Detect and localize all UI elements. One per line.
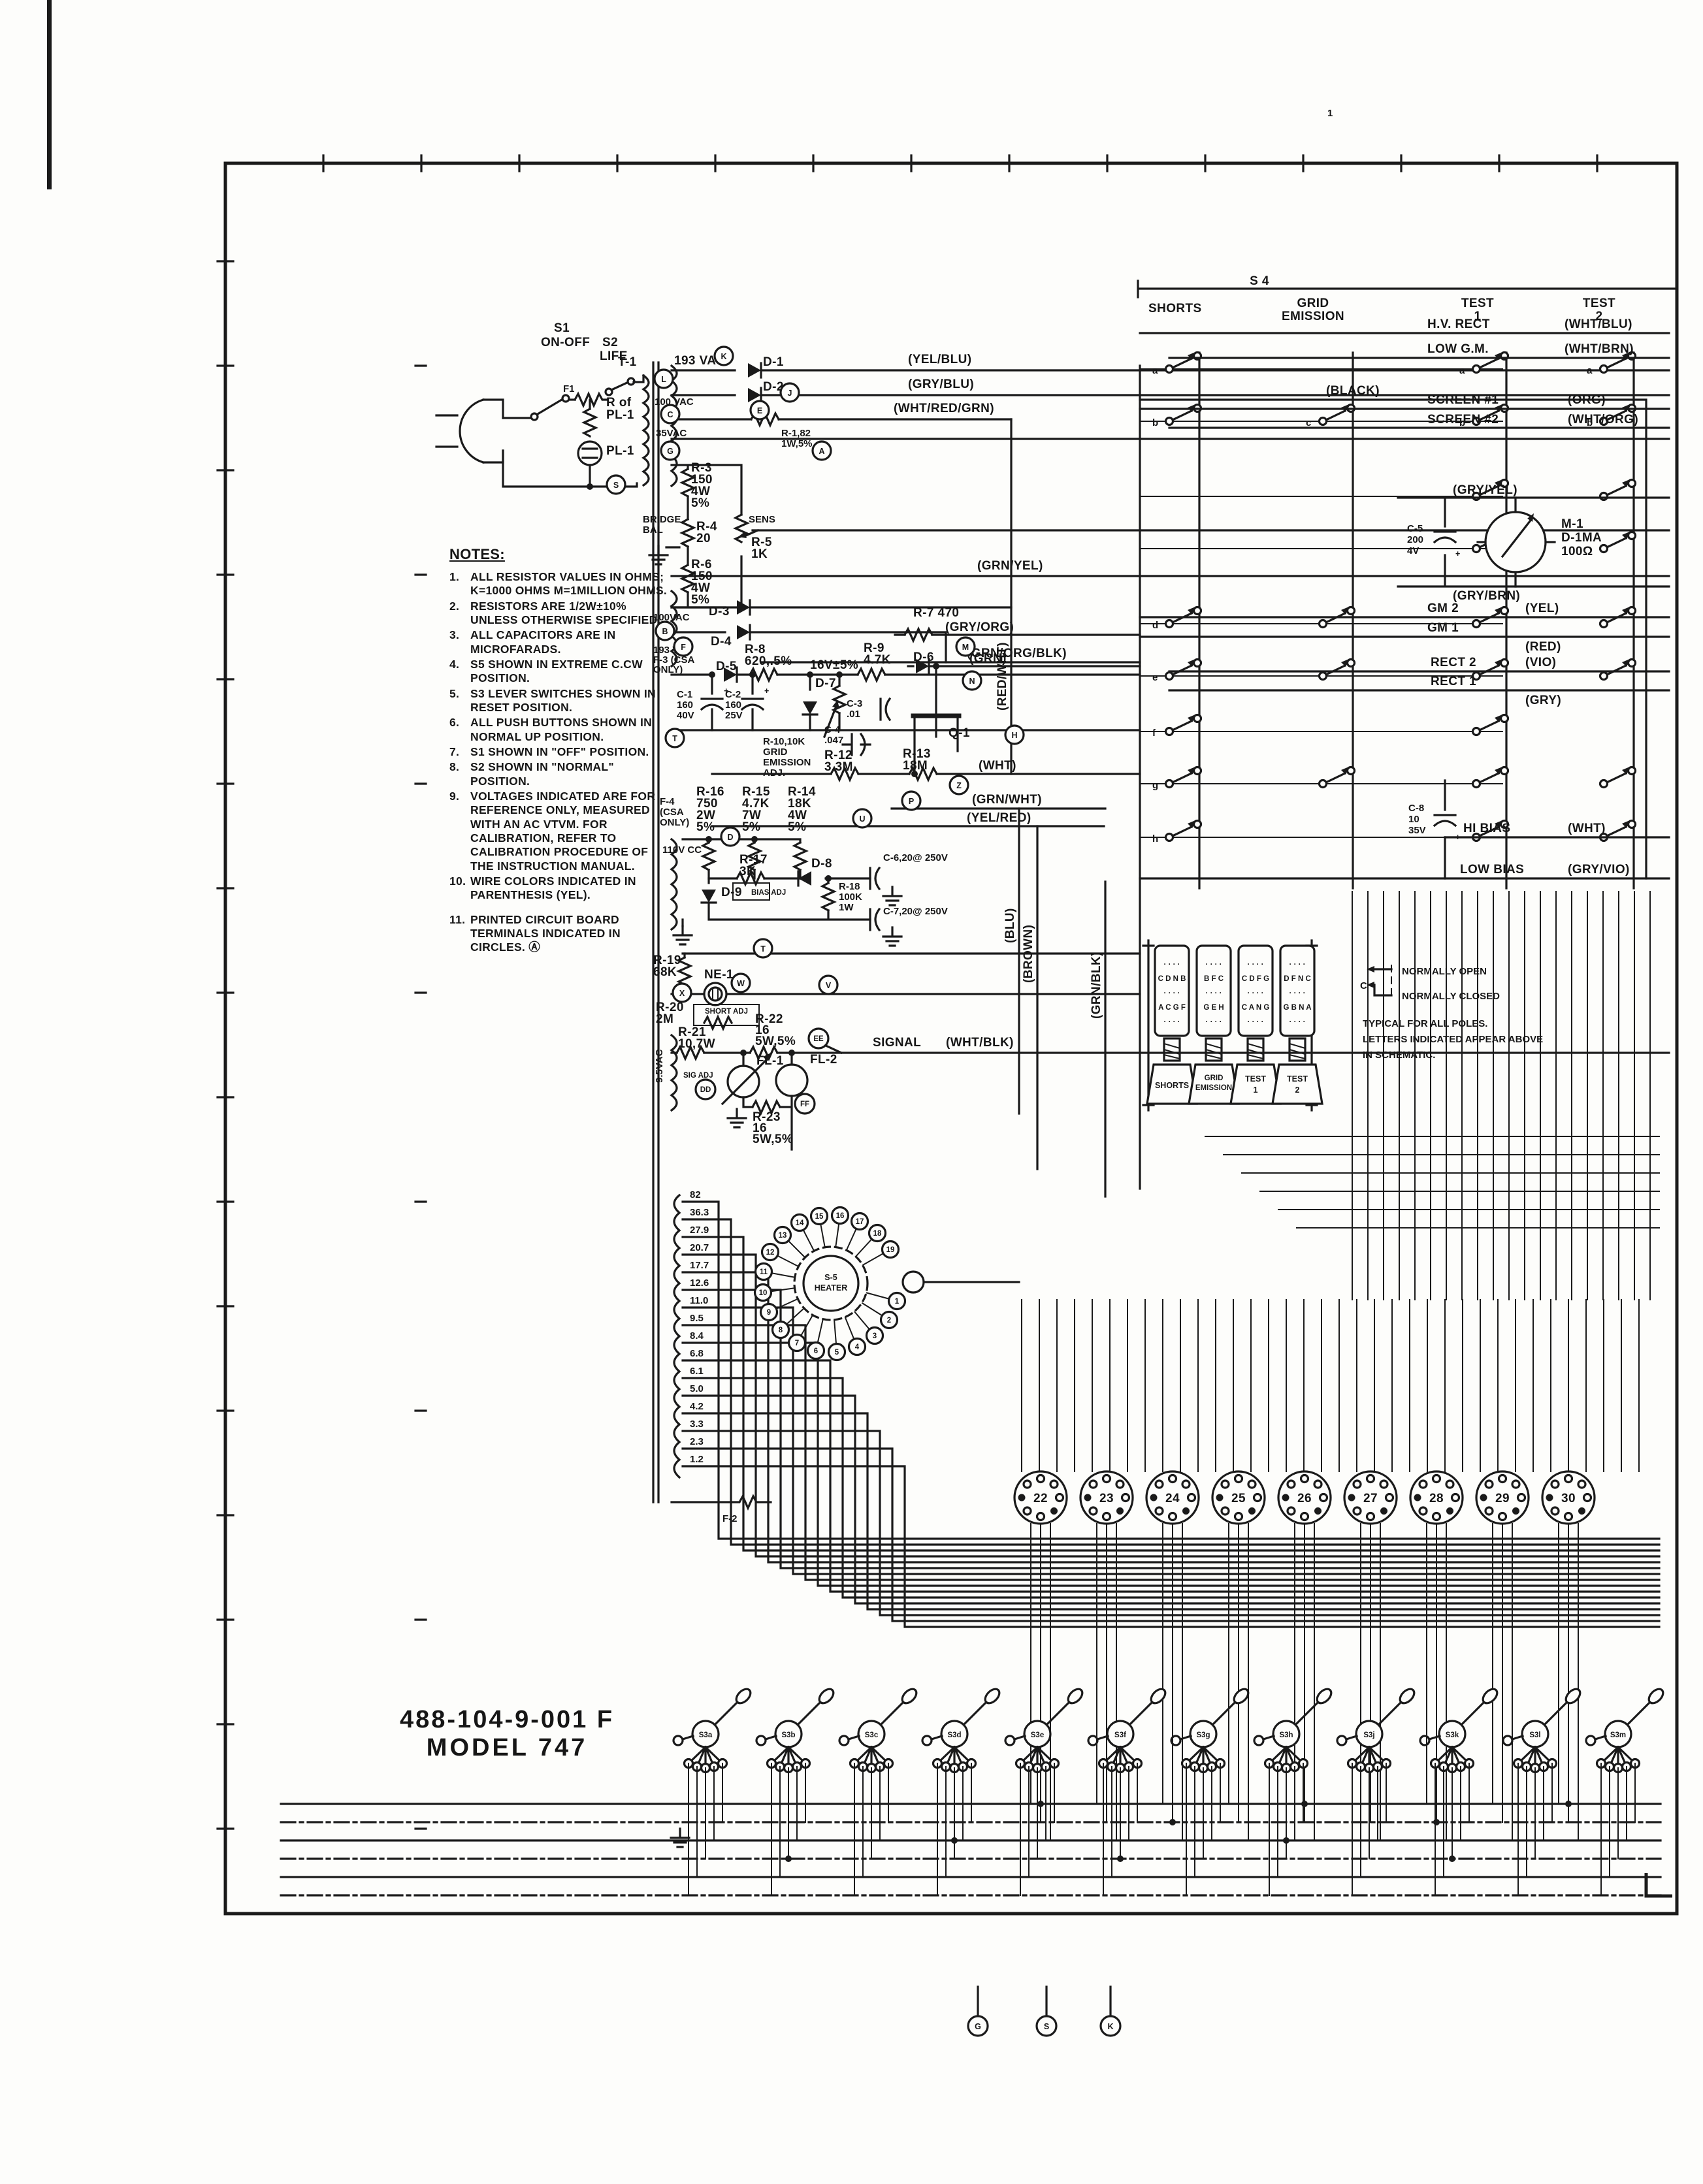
note-item: 5.S3 LEVER SWITCHES SHOWN IN RESET POSIT… (449, 687, 669, 715)
socket-27: 27 (1363, 1492, 1378, 1505)
d4-label: D-4 (711, 635, 732, 649)
part-number: 488-104-9-001 F (400, 1706, 614, 1734)
c2-plus: + (764, 686, 769, 696)
d8-label: D-8 (811, 857, 832, 871)
s2-ref: S2 (602, 336, 618, 349)
socket-29: 29 (1495, 1492, 1510, 1505)
btn1-letters2: A C G F (1158, 1004, 1186, 1012)
rectifier-section: 100VAC D-3 D-4 193 VACF-3 (CSAONLY) (GRN… (653, 600, 1140, 779)
btn1-dots2: · · · · (1164, 989, 1180, 997)
svg-text:6: 6 (814, 1347, 818, 1355)
bias-adj-label: BIAS ADJ (751, 889, 786, 897)
svg-text:D: D (727, 833, 733, 842)
svg-text:16: 16 (836, 1212, 845, 1220)
note-item: 6.ALL PUSH BUTTONS SHOWN IN NORMAL UP PO… (449, 716, 669, 744)
wire-gry-blu: (GRY/BLU) (908, 377, 974, 391)
svg-text:DD: DD (700, 1086, 711, 1094)
btn2-letters2: G E H (1203, 1004, 1224, 1012)
svg-text:S: S (613, 481, 619, 490)
lever-s3c: S3c (865, 1731, 879, 1739)
s5-heater-switch: S-5HEATER 1 2 3 4 5 6 7 8 9 10 11 12 13 … (755, 1208, 1020, 1360)
row-rect1: RECT 1 (1431, 675, 1476, 688)
row-low-bias: LOW BIAS (1460, 863, 1524, 876)
svg-text:10: 10 (759, 1289, 768, 1297)
svg-text:15: 15 (815, 1213, 824, 1221)
tap-82: 82 (690, 1189, 701, 1200)
btn2-letters1: B F C (1204, 975, 1224, 983)
svg-text:K: K (1107, 2022, 1113, 2031)
scan-artifact (47, 0, 52, 189)
svg-text:T: T (672, 734, 677, 743)
pushbutton-test2: · · · · D F N C · · · · G B N A · · · · … (1273, 946, 1322, 1104)
lever-s3a: S3a (699, 1731, 713, 1739)
c3-label: C-3.01 (847, 698, 862, 720)
btn4-letters2: G B N A (1283, 1004, 1311, 1012)
tap-11-0: 11.0 (690, 1295, 708, 1306)
r19-label: R-1968K (653, 954, 681, 979)
s4-label: S 4 (1250, 274, 1269, 288)
tap-9-5: 9.5 (690, 1313, 704, 1324)
page-mark: 1 (1327, 108, 1333, 119)
svg-text:7: 7 (795, 1340, 799, 1347)
pl1-label: PL-1 (606, 444, 634, 458)
row-gm1-color: (RED) (1525, 640, 1561, 654)
svg-text:2: 2 (887, 1317, 891, 1325)
svg-text:J: J (788, 389, 792, 398)
s1-ref: S1 (554, 321, 570, 335)
r9-label: R-94.7K (864, 641, 891, 667)
pole-e: e (1152, 672, 1158, 683)
wire-blu: (BLU) (1003, 908, 1017, 943)
pushbutton-test1: · · · · C D F G · · · · C A N G · · · · … (1231, 946, 1280, 1104)
tap-2-3: 2.3 (690, 1436, 704, 1447)
tap-12-6: 12.6 (690, 1277, 709, 1289)
tap-6-1: 6.1 (690, 1366, 704, 1377)
note-item: 2.RESISTORS ARE 1/2W±10% UNLESS OTHERWIS… (449, 600, 669, 628)
svg-text:G: G (667, 447, 673, 456)
m1-label: M-1D-1MA100Ω (1561, 517, 1602, 558)
socket-26: 26 (1297, 1492, 1312, 1505)
s1-label: ON-OFF (541, 336, 590, 349)
wire-wht-blk: (WHT/BLK) (946, 1036, 1014, 1050)
btn3-dots3: · · · · (1248, 1018, 1264, 1026)
socket-23: 23 (1099, 1492, 1114, 1505)
btn3-letters2: C A N G (1242, 1004, 1270, 1012)
btn3-dots1: · · · · (1248, 961, 1264, 969)
pole-d: d (1152, 620, 1158, 631)
svg-text:8: 8 (779, 1326, 783, 1334)
ne1-label: NE-1 (704, 968, 734, 982)
s4-col-grid-emission: GRIDEMISSION (1282, 297, 1344, 323)
svg-text:S: S (1044, 2022, 1049, 2031)
pole-a2: a (1459, 365, 1465, 376)
sig-adj-label: SIG ADJ (683, 1072, 713, 1080)
lever-s3e: S3e (1031, 1731, 1044, 1739)
d9-label: D-9 (721, 886, 742, 899)
row-low-gm-color: (WHT/BRN) (1565, 342, 1634, 356)
lever-s3m: S3m (1610, 1731, 1626, 1739)
row-screen2-color: (WHT/ORG) (1568, 413, 1638, 426)
tube-sockets: 22 23 24 25 26 27 28 29 30 (1014, 1471, 1595, 1840)
btn2-dots3: · · · · (1206, 1018, 1222, 1026)
svg-text:U: U (859, 814, 865, 824)
row-hi-bias-color: (WHT) (1568, 822, 1606, 835)
r-of-pl1-label: R ofPL-1 (606, 396, 634, 422)
pole-h: h (1152, 833, 1158, 844)
svg-text:13: 13 (779, 1232, 787, 1240)
c6-label: C-6,20@ 250V (883, 852, 948, 863)
btn4-dots1: · · · · (1289, 961, 1306, 969)
svg-text:12: 12 (766, 1249, 775, 1257)
btn1-dots1: · · · · (1164, 961, 1180, 969)
r7-ref: R-7 470 (913, 606, 959, 620)
schematic-drawing: 1 S1 ON-OFF S2 LIFE F1 R ofPL-1 PL-1 T-1… (0, 0, 1703, 2184)
pole-b: b (1152, 417, 1158, 428)
meter-bot-color: (GRY/BRN) (1453, 589, 1520, 603)
note-item: 10.WIRE COLORS INDICATED IN PARENTHESIS … (449, 875, 669, 903)
r13-label: R-1318M (903, 747, 931, 773)
c7-label: C-7,20@ 250V (883, 906, 948, 917)
svg-text:T: T (760, 944, 766, 954)
svg-text:EE: EE (813, 1035, 824, 1043)
row-rect2: RECT 2 (1431, 656, 1476, 669)
tap-8-4: 8.4 (690, 1330, 704, 1341)
row-screen1-color: (ORG) (1568, 393, 1606, 407)
r12-label: R-123.3M (824, 748, 853, 774)
btn4-dots2: · · · · (1289, 989, 1306, 997)
btn2-dots2: · · · · (1206, 989, 1222, 997)
c5-label: C-52004V (1407, 523, 1423, 556)
row-black-color: (BLACK) (1326, 384, 1380, 398)
r20-label: R-202M (656, 1001, 684, 1026)
svg-text:P: P (909, 797, 914, 806)
socket-22: 22 (1033, 1492, 1048, 1505)
r23-label: R-23165W,5% (753, 1110, 793, 1146)
svg-text:X: X (679, 989, 685, 998)
svg-text:9: 9 (767, 1309, 771, 1317)
pushbutton-assembly: · · · · C D N B · · · · A C G F · · · · … (1143, 940, 1322, 1110)
row-rect1-color: (GRY) (1525, 694, 1561, 707)
notes-block: NOTES: 1.ALL RESISTOR VALUES IN OHMS; K=… (449, 546, 669, 956)
lever-s3h: S3h (1279, 1731, 1293, 1739)
socket-25: 25 (1231, 1492, 1246, 1505)
row-gm2-color: (YEL) (1525, 602, 1559, 615)
r1-label: R-1,821W,5% (781, 428, 813, 449)
r4-label: R-420 (696, 520, 717, 545)
bridge-bal-label: BRIDGEBAL (643, 514, 681, 536)
svg-text:W: W (737, 979, 745, 988)
svg-text:H: H (1011, 731, 1017, 740)
pushbutton-shorts: · · · · C D N B · · · · A C G F · · · · … (1147, 946, 1197, 1104)
short-adj-label: SHORT ADJ (705, 1008, 748, 1016)
c5-plus: + (1455, 549, 1460, 558)
s4-col-shorts: SHORTS (1148, 302, 1202, 315)
sens-label: SENS (749, 514, 775, 525)
row-screen1: SCREEN #1 (1427, 393, 1499, 407)
r8-label: R-8620,.5% (745, 643, 792, 668)
wire-gry-org: (GRY/ORG) (945, 620, 1014, 634)
notes-title: NOTES: (449, 546, 669, 564)
note-item: 8.S2 SHOWN IN "NORMAL" POSITION. (449, 760, 669, 788)
note-item: 9.VOLTAGES INDICATED ARE FOR REFERENCE O… (449, 790, 669, 873)
d3-label: D-3 (709, 605, 730, 618)
r5-label: R-51K (751, 536, 772, 561)
svg-text:E: E (757, 406, 762, 415)
d6-label: D-6 (913, 650, 934, 664)
socket-28: 28 (1429, 1492, 1444, 1505)
legend-note: TYPICAL FOR ALL POLES.LETTERS INDICATED … (1363, 1018, 1543, 1061)
c4-label: C-4.047 (824, 724, 843, 746)
svg-text:M: M (962, 643, 969, 652)
svg-text:C: C (667, 410, 673, 419)
svg-text:V: V (826, 981, 832, 990)
svg-text:17: 17 (856, 1218, 864, 1226)
tap-5-0: 5.0 (690, 1383, 704, 1394)
d1-label: D-1 (763, 355, 784, 369)
svg-text:G: G (975, 2022, 981, 2031)
q1-label: Q-1 (949, 726, 970, 740)
wire-grn-wht: (GRN/WHT) (972, 793, 1042, 807)
btn1-dots3: · · · · (1164, 1018, 1180, 1026)
btn4-dots3: · · · · (1289, 1018, 1306, 1026)
power-input-section: S1 ON-OFF S2 LIFE F1 R ofPL-1 PL-1 (436, 321, 643, 487)
svg-text:11: 11 (760, 1268, 768, 1276)
btn2-dots1: · · · · (1206, 961, 1222, 969)
socket-30: 30 (1561, 1492, 1576, 1505)
meter-top-color: (GRY/YEL) (1453, 483, 1517, 497)
row-screen2: SCREEN #2 (1427, 413, 1499, 426)
fl1-label: FL-1 (756, 1054, 784, 1068)
c8-plus: + (1455, 833, 1460, 842)
svg-text:14: 14 (796, 1219, 804, 1227)
legend-closed: NORMALLY CLOSED (1402, 991, 1500, 1002)
wire-field (1022, 891, 1659, 1471)
wire-red-wht: (RED/WHT) (996, 642, 1009, 711)
note-item: 3.ALL CAPACITORS ARE IN MICROFARADS. (449, 628, 669, 656)
signal-label: SIGNAL (873, 1036, 921, 1050)
lever-s3d: S3d (947, 1731, 961, 1739)
contact-legend: C NORMALLY OPEN NORMALLY CLOSED TYPICAL … (1360, 965, 1543, 1061)
r10-grid-emission-adj: R-10,10KGRIDEMISSIONADJ. (763, 736, 811, 779)
f2-label: F-2 (722, 1513, 738, 1524)
wire-grn-blk: (GRN/BLK) (1090, 952, 1103, 1019)
title-block: 488-104-9-001 F MODEL 747 (400, 1706, 614, 1762)
r22-label: R-22165W,5% (755, 1012, 796, 1048)
lever-s3b: S3b (781, 1731, 795, 1739)
pole-a3: a (1587, 365, 1593, 376)
tap-3-3: 3.3 (690, 1419, 704, 1430)
svg-text:Z: Z (956, 781, 962, 790)
svg-text:3: 3 (873, 1332, 877, 1340)
btn1-cap-label: SHORTS (1155, 1081, 1189, 1090)
output-wire-runs: H.V. RECT(WHT/BLU) LOW G.M.(WHT/BRN) (BL… (1140, 317, 1669, 878)
svg-text:4: 4 (855, 1343, 860, 1351)
t1-label: T-1 (618, 355, 637, 369)
svg-text:K: K (721, 352, 726, 361)
btn3-dots2: · · · · (1248, 989, 1264, 997)
c2-label: C-216025V (725, 689, 743, 721)
btn3-letters1: C D F G (1242, 975, 1269, 983)
row-low-bias-color: (GRY/VIO) (1568, 863, 1630, 876)
tap-4-2: 4.2 (690, 1401, 704, 1412)
wire-yel-red: (YEL/RED) (967, 811, 1031, 825)
model-number: MODEL 747 (400, 1734, 614, 1762)
wire-yel-blu: (YEL/BLU) (908, 353, 972, 366)
row-low-gm: LOW G.M. (1427, 342, 1489, 356)
bias-section: F-4(CSAONLY) R-167502W5% R-154.7K7W5% R-… (660, 785, 1140, 954)
q1-section: R-7 470 (GRY/ORG) D-6 (GRN) Q-1 C-3.01 C… (712, 606, 1140, 826)
row-hv-rect-color: (WHT/BLU) (1565, 317, 1632, 331)
tap-17-7: 17.7 (690, 1260, 709, 1271)
r21-label: R-2110,7W (678, 1025, 715, 1051)
note-item: 7.S1 SHOWN IN "OFF" POSITION. (449, 745, 669, 759)
row-gm1: GM 1 (1427, 621, 1459, 635)
svg-text:N: N (969, 677, 975, 686)
svg-text:1: 1 (895, 1298, 900, 1306)
note-item: 11.PRINTED CIRCUIT BOARD TERMINALS INDIC… (449, 913, 669, 955)
r18-label: R-18100K1W (839, 881, 862, 913)
svg-text:18: 18 (873, 1230, 882, 1238)
btn1-letters1: C D N B (1158, 975, 1186, 983)
tap-1-2: 1.2 (690, 1454, 704, 1465)
pole-f: f (1152, 728, 1156, 739)
wire-wht-red-grn: (WHT/RED/GRN) (894, 402, 994, 415)
f1-label: F1 (563, 383, 575, 394)
v35-label: 35VAC (656, 428, 687, 439)
lever-s3k: S3k (1446, 1731, 1459, 1739)
lever-s3j: S3j (1363, 1731, 1374, 1739)
c1-label: C-116040V (677, 689, 694, 721)
svg-text:A: A (819, 447, 824, 456)
pole-g: g (1152, 780, 1158, 791)
pole-a: a (1152, 365, 1158, 376)
row-gm2: GM 2 (1427, 602, 1459, 615)
row-rect2-color: (VIO) (1525, 656, 1556, 669)
tap-6-8: 6.8 (690, 1348, 704, 1359)
v16-label: 16V±5% (810, 658, 858, 672)
svg-text:19: 19 (886, 1246, 895, 1254)
lever-s3g: S3g (1196, 1731, 1210, 1739)
pushbutton-grid-emission: · · · · B F C · · · · G E H · · · · GRID… (1189, 946, 1239, 1104)
schematic-sheet: 1 S1 ON-OFF S2 LIFE F1 R ofPL-1 PL-1 T-1… (0, 0, 1703, 2184)
legend-c: C (1360, 980, 1367, 991)
lever-s3l: S3l (1529, 1731, 1540, 1739)
note-item: 1.ALL RESISTOR VALUES IN OHMS; K=1000 OH… (449, 570, 669, 598)
svg-text:FF: FF (800, 1100, 809, 1108)
svg-text:L: L (661, 375, 666, 384)
c8-label: C-81035V (1408, 803, 1426, 836)
socket-24: 24 (1165, 1492, 1180, 1505)
row-hi-bias: HI BIAS (1463, 822, 1510, 835)
note-item: 4.S5 SHOWN IN EXTREME C.CW POSITION. (449, 658, 669, 686)
tap-27-9: 27.9 (690, 1225, 709, 1236)
btn4-letters1: D F N C (1284, 975, 1311, 983)
r6-label: R-61504W5% (691, 558, 713, 607)
tap-36-3: 36.3 (690, 1207, 709, 1218)
wire-grn-yel: (GRN/YEL) (977, 559, 1043, 573)
svg-text:5: 5 (835, 1349, 839, 1357)
svg-text:F: F (681, 643, 686, 652)
lever-s3f: S3f (1114, 1731, 1126, 1739)
fl2-label: FL-2 (810, 1053, 837, 1067)
row-hv-rect: H.V. RECT (1427, 317, 1490, 331)
v95-label: 9.5VAC (654, 1049, 665, 1083)
d5-label: D-5 (716, 660, 737, 673)
tap-20-7: 20.7 (690, 1242, 709, 1253)
r3-label: R-31504W5% (691, 461, 713, 510)
